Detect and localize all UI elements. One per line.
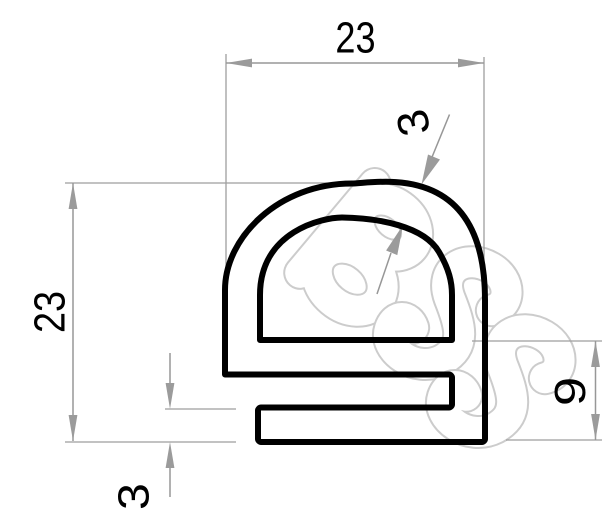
svg-text:23: 23	[335, 13, 375, 62]
svg-text:23: 23	[25, 291, 74, 333]
svg-text:3: 3	[109, 483, 158, 510]
svg-text:9: 9	[546, 377, 595, 406]
